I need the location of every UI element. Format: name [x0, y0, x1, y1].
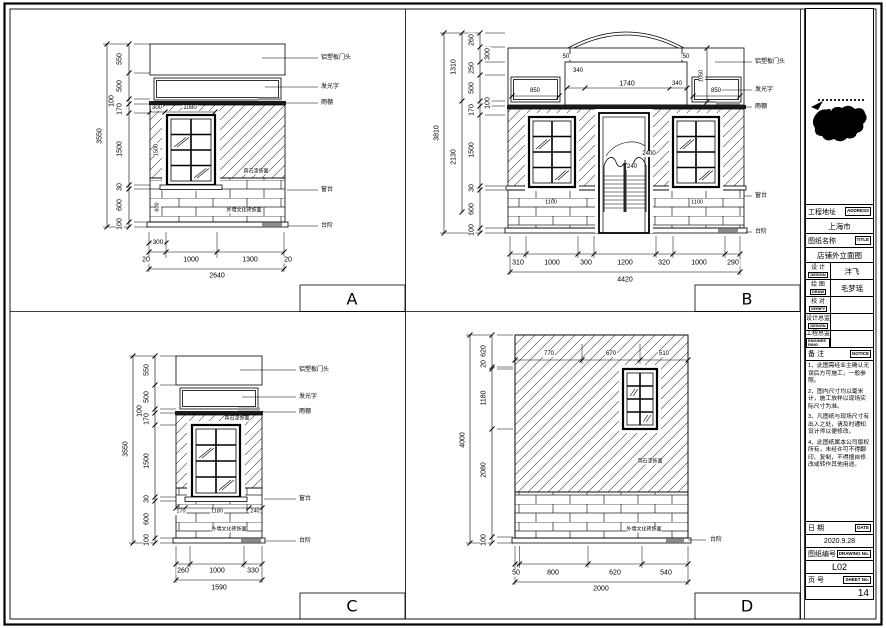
sheet-no-tag: SHEET No.: [843, 576, 871, 584]
dimension-label: 600: [155, 201, 161, 212]
drawing-sheet: A B C D 工程地址 ADDRESS 上海市 图纸名称 TITLE 店铺外立…: [0, 0, 886, 628]
leader-annotation: 发光字: [755, 87, 773, 93]
dimension-label: 1100: [544, 200, 558, 206]
dimension-label: 320: [657, 260, 671, 267]
dimension-label: 310: [511, 260, 525, 267]
leader-annotation: 雨棚: [299, 409, 311, 415]
dimension-label: 1080: [182, 105, 197, 111]
design-director-label: 设计总监: [806, 316, 830, 322]
dimension-label: 1100: [690, 200, 704, 206]
dimension-label: 1500: [154, 143, 160, 157]
engineer-value: [831, 331, 873, 347]
dimension-label: 620: [481, 344, 488, 358]
dimension-label: 1000: [543, 260, 561, 267]
date-tag: DATE: [855, 524, 871, 532]
finish-annotation: 真石漆饰面: [637, 460, 662, 465]
dimension-label: 300: [485, 47, 492, 61]
dimension-label: 250: [469, 61, 476, 75]
dimension-label: 800: [546, 570, 560, 577]
dimension-label: 20: [283, 257, 293, 264]
dimension-label: 1050: [699, 69, 705, 83]
dimension-label: 100: [469, 223, 476, 237]
note-1: 1、此图需经业主确认无误后方可施工，一般参照。: [808, 363, 871, 386]
logo-cell: [805, 8, 874, 205]
leader-annotation: 台阶: [321, 223, 333, 229]
dimension-label: 50: [511, 570, 521, 577]
leader-annotation: 雨棚: [321, 100, 333, 106]
view-b-label: B: [742, 290, 753, 309]
leader-annotation: 窗台: [321, 187, 333, 193]
sheet-no-label: 页 号: [808, 575, 824, 585]
dimension-label: 300: [151, 105, 163, 111]
dimension-label: 260: [176, 568, 190, 575]
finish-annotation: 外墙文化砖饰面: [226, 209, 261, 214]
dimension-label: 550: [117, 52, 124, 66]
note-2: 2、图内尺寸均以毫米计，施工放样以现场实际尺寸为准。: [808, 389, 871, 412]
leader-annotation: 发光字: [321, 84, 339, 90]
dimension-label: 20: [481, 359, 488, 369]
address-value: 上海市: [805, 218, 874, 234]
cad-canvas: [0, 0, 886, 628]
view-d-label: D: [741, 597, 753, 616]
dimension-label: 100: [109, 94, 116, 108]
address-row: 工程地址 ADDRESS: [805, 204, 874, 219]
dimension-label: 20: [141, 257, 151, 264]
dimension-label: 290: [726, 260, 740, 267]
draftsman-row: 绘 图DRAW 毛梦瑶: [805, 279, 874, 297]
view-a-label: A: [347, 290, 358, 309]
verify-tag: VERIFY: [809, 306, 827, 312]
dimension-label: 260: [469, 33, 476, 47]
dimension-label: 50: [562, 54, 571, 60]
dimension-label: 1000: [182, 257, 200, 264]
dimension-label: 1180: [210, 509, 224, 515]
notice-tag: NOTICE: [850, 350, 871, 358]
dimension-label: 100: [117, 217, 124, 231]
company-logo-icon: [809, 97, 871, 143]
dimension-label: 2080: [481, 461, 488, 479]
dimension-label: 2400: [641, 151, 656, 157]
dimension-label: 170: [175, 509, 186, 515]
dimension-label: 2000: [592, 586, 610, 593]
dimension-label: 600: [469, 202, 476, 216]
dimension-label: 240: [249, 509, 260, 515]
leader-annotation: 窗台: [755, 193, 767, 199]
drawing-title-label: 图纸名称: [808, 236, 836, 246]
drawing-no-tag: DRAWING No.: [837, 550, 871, 558]
dimension-label: 170: [144, 412, 151, 426]
leader-annotation: 台阶: [755, 229, 767, 235]
leader-annotation: 台阶: [299, 538, 311, 544]
dimension-label: 300: [579, 260, 593, 267]
date-label: 日 期: [808, 523, 824, 533]
engineer-label: 工程总监: [806, 331, 830, 337]
dimension-label: 550: [144, 363, 151, 377]
dimension-label: 1200: [616, 260, 634, 267]
finish-annotation: 外墙文化砖饰面: [626, 528, 661, 533]
leader-annotation: 窗台: [299, 496, 311, 502]
dimension-label: 1740: [618, 81, 636, 88]
dimension-label: 4420: [616, 277, 634, 284]
finish-annotation: 外墙文化砖饰面: [211, 528, 246, 533]
dimension-label: 340: [671, 81, 683, 87]
date-row: 日 期 DATE: [805, 521, 874, 535]
dimension-label: 100: [144, 533, 151, 547]
note-4: 4、此图纸属本公司版权所有，未经许可不得翻印、复制，不得擅自修改或转作其他用途。: [808, 440, 871, 470]
dimension-label: 2130: [451, 148, 458, 166]
dimension-label: 620: [608, 570, 622, 577]
dimension-label: 500: [469, 81, 476, 95]
dimension-label: 500: [144, 390, 151, 404]
dimension-label: 850: [710, 88, 722, 94]
dimension-label: 540: [659, 570, 673, 577]
design-director-value: [831, 314, 873, 330]
finish-annotation: 真石漆饰面: [243, 170, 268, 175]
dimension-label: 1000: [690, 260, 708, 267]
dimension-label: 1500: [469, 141, 476, 159]
drawing-no-label: 图纸编号: [808, 549, 836, 559]
drawing-title-value: 店铺外立面图: [805, 247, 874, 263]
dimension-label: 600: [144, 512, 151, 526]
notice-label: 备 注: [808, 349, 824, 359]
dimension-label: 3810: [434, 124, 441, 142]
leader-annotation: 台阶: [710, 537, 722, 543]
verifier-row: 校 对VERIFY: [805, 296, 874, 314]
note-3: 3、凡图纸与现场尺寸有出入之处，请及时通知设计师以便修改。: [808, 414, 871, 437]
design-tag: DESIGN: [808, 272, 827, 278]
dimension-label: 510: [658, 351, 670, 357]
date-value: 2020.9.28: [805, 534, 874, 548]
draw-value: 毛梦瑶: [831, 280, 873, 296]
dimension-label: 170: [117, 102, 124, 116]
dimension-label: 170: [469, 103, 476, 117]
drawing-title-tag: TITLE: [855, 236, 872, 244]
dimension-label: 670: [605, 351, 617, 357]
dimension-label: 330: [246, 568, 260, 575]
dimension-label: 240: [626, 164, 638, 170]
draw-label: 绘 图: [811, 282, 825, 288]
dimension-label: 1500: [144, 452, 151, 470]
drawing-title-row: 图纸名称 TITLE: [805, 233, 874, 248]
drawing-no-row: 图纸编号 DRAWING No.: [805, 547, 874, 561]
dimension-label: 100: [485, 96, 492, 110]
title-block: 工程地址 ADDRESS 上海市 图纸名称 TITLE 店铺外立面图 设 计DE…: [805, 9, 874, 600]
dimension-label: 1500: [117, 140, 124, 158]
address-label: 工程地址: [808, 207, 836, 217]
sheet-no-value: 14: [805, 586, 874, 600]
dimension-label: 4000: [460, 431, 467, 449]
dimension-label: 2640: [208, 273, 226, 280]
engineer-row: 工程总监ENGINEE RING: [805, 330, 874, 348]
dimension-label: 30: [117, 182, 124, 192]
dimension-label: 340: [572, 68, 584, 74]
draw-tag: DRAW: [810, 289, 826, 295]
dimension-label: 600: [117, 198, 124, 212]
drawing-no-value: L02: [805, 560, 874, 574]
dimension-label: 500: [117, 79, 124, 93]
dimension-label: 100: [137, 404, 144, 418]
notice-notes: 1、此图需经业主确认无误后方可施工，一般参照。 2、图内尺寸均以毫米计，施工放样…: [805, 360, 874, 522]
verify-value: [831, 297, 873, 313]
leader-annotation: 铝塑板门头: [755, 59, 785, 65]
view-c-label: C: [346, 597, 357, 616]
dimension-label: 300: [152, 240, 165, 247]
verify-label: 校 对: [811, 299, 825, 305]
design-value: 沣飞: [831, 263, 873, 279]
designer-row: 设 计DESIGN 沣飞: [805, 262, 874, 280]
dimension-label: 850: [529, 88, 541, 94]
design-label: 设 计: [811, 265, 825, 271]
leader-annotation: 铝塑板门头: [299, 367, 329, 373]
dimension-label: 1310: [451, 58, 458, 76]
leader-annotation: 雨棚: [755, 104, 767, 110]
dimension-label: 100: [481, 533, 488, 547]
design-director-tag: DESIGN: [808, 323, 827, 329]
dimension-label: 1000: [208, 568, 226, 575]
notice-row: 备 注 NOTICE: [805, 347, 874, 361]
dimension-label: 30: [144, 494, 151, 504]
design-director-row: 设计总监DESIGN: [805, 313, 874, 331]
dimension-label: 1180: [481, 389, 488, 406]
dimension-label: 50: [682, 54, 691, 60]
engineer-tag: ENGINEE RING: [806, 338, 830, 348]
dimension-label: 1300: [241, 257, 259, 264]
dimension-label: 3550: [97, 127, 104, 145]
sheet-no-row: 页 号 SHEET No.: [805, 573, 874, 587]
dimension-label: 770: [543, 351, 555, 357]
dimension-label: 3550: [123, 440, 130, 458]
address-tag: ADDRESS: [845, 207, 871, 215]
dimension-label: 30: [469, 183, 476, 193]
leader-annotation: 发光字: [299, 394, 317, 400]
leader-annotation: 铝塑板门头: [321, 55, 351, 61]
finish-annotation: 真石漆饰面: [224, 417, 249, 422]
dimension-label: 1590: [210, 585, 228, 592]
